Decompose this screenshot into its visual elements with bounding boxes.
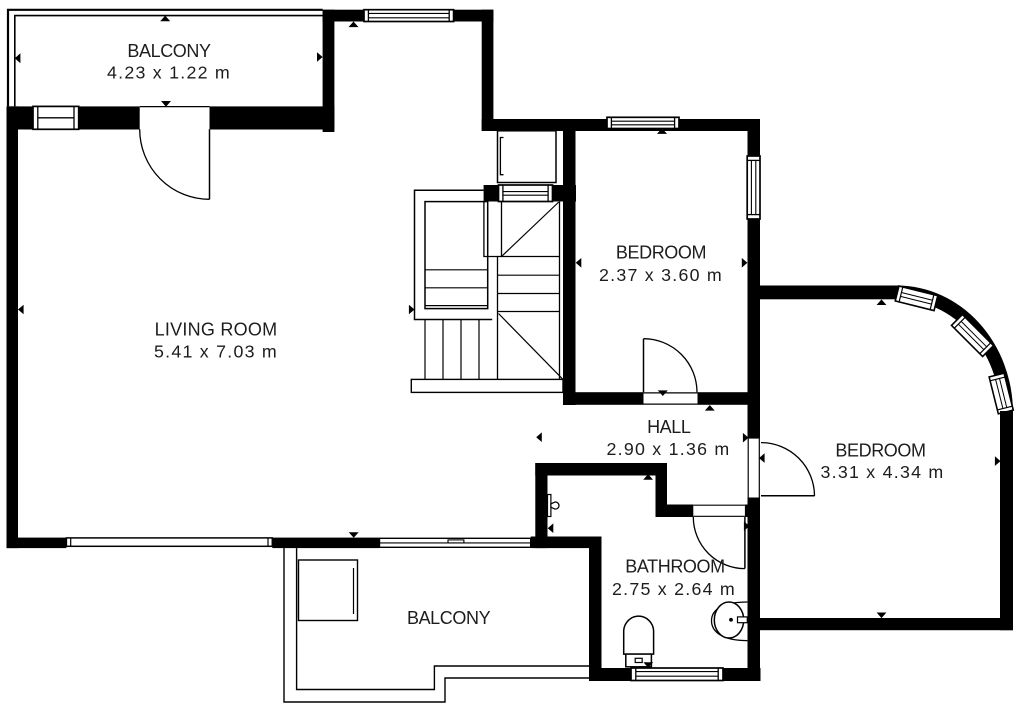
svg-text:4.23 x 1.22 m: 4.23 x 1.22 m: [107, 63, 231, 83]
svg-text:2.90 x 1.36 m: 2.90 x 1.36 m: [607, 439, 731, 459]
svg-text:BEDROOM: BEDROOM: [616, 243, 706, 263]
svg-text:BALCONY: BALCONY: [127, 41, 211, 61]
svg-text:3.31 x 4.34 m: 3.31 x 4.34 m: [821, 462, 945, 482]
svg-text:HALL: HALL: [647, 417, 691, 437]
svg-text:2.37 x 3.60 m: 2.37 x 3.60 m: [599, 265, 723, 285]
svg-text:BEDROOM: BEDROOM: [835, 441, 925, 461]
svg-text:5.41 x 7.03 m: 5.41 x 7.03 m: [154, 342, 278, 362]
svg-text:BATHROOM: BATHROOM: [625, 557, 724, 577]
svg-text:LIVING ROOM: LIVING ROOM: [155, 320, 278, 340]
svg-text:BALCONY: BALCONY: [407, 608, 491, 628]
svg-text:2.75 x 2.64 m: 2.75 x 2.64 m: [612, 579, 736, 599]
